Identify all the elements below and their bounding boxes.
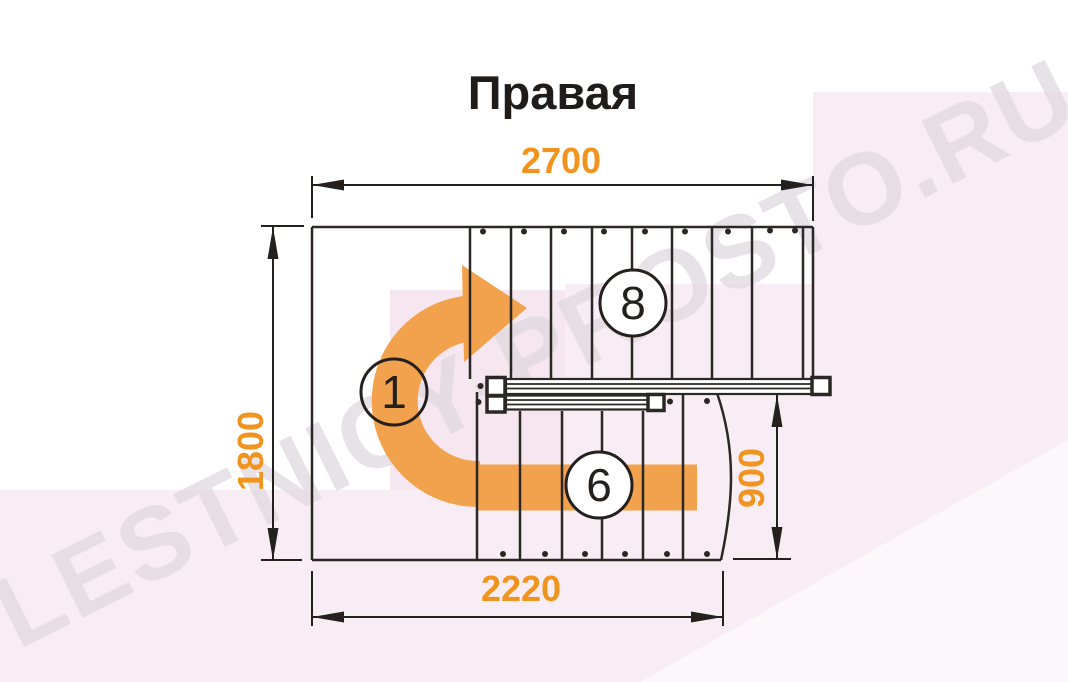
plan-title: Правая [468,66,638,119]
upper-flight-number: 8 [620,277,646,329]
beam-bracket-upper-right [812,378,830,395]
lower-flight-number: 6 [586,459,612,511]
beam-bracket-upper-left [487,378,505,396]
beam-bracket-lower-left [487,396,505,412]
lower-beam [506,396,648,410]
dimension-arrowhead [268,227,279,259]
dimension-right-label: 900 [731,448,772,508]
staircase-plan-svg: LESTNICY-PROSTO.RU [0,0,1068,682]
dimension-top-label: 2700 [521,140,601,181]
beam-bracket-lower-right [648,395,664,411]
staircase-plan-page: LESTNICY-PROSTO.RU [0,0,1068,682]
dimension-left-label: 1800 [230,411,271,491]
dimension-arrowhead [312,180,344,191]
upper-beam [506,379,813,394]
dimension-bottom-label: 2220 [481,568,561,609]
entry-area-number: 1 [381,366,407,418]
